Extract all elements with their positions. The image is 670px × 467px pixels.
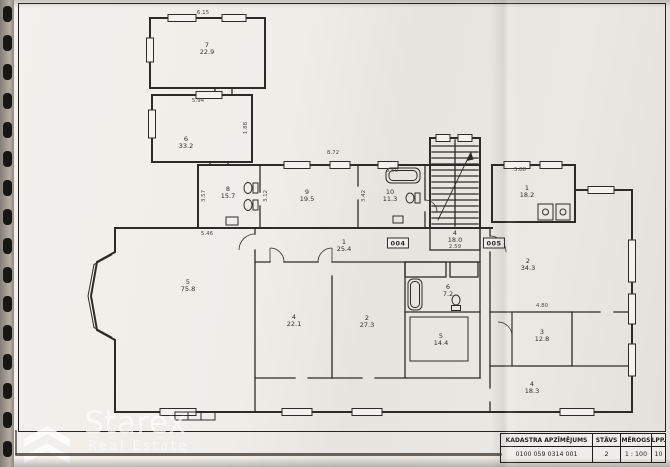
room-label: 312.8	[535, 329, 549, 343]
dimension-label: 6.15	[197, 10, 209, 16]
stairs-icon	[430, 138, 480, 228]
title-block-header-stavs: STĀVS	[593, 434, 621, 447]
binding-hole	[3, 93, 12, 109]
paper-bottom-edge	[15, 453, 502, 456]
binding-hole	[3, 122, 12, 138]
room-label: 722.9	[200, 42, 214, 56]
spiral-binding	[0, 0, 14, 467]
title-block-header-lpp: LPP.	[652, 434, 665, 447]
wc-cabin-icon	[538, 204, 553, 220]
binding-hole	[3, 64, 12, 80]
room-label: 575.8	[181, 279, 195, 293]
photographed-floorplan-page: 722.9 633.2 815.7 919.5 1011.3 418.0 125…	[0, 0, 670, 467]
binding-hole	[3, 412, 12, 428]
dimension-label: 8.72	[327, 150, 339, 156]
toilet-icon	[244, 183, 258, 194]
binding-hole	[3, 267, 12, 283]
dimension-label: 3.12	[263, 190, 269, 202]
binding-hole	[3, 383, 12, 399]
dimension-label: 1.88	[243, 122, 249, 134]
room-label: 422.1	[287, 314, 301, 328]
title-block-header-merogs: MĒROGS	[621, 434, 652, 447]
wc-cabin-icon	[556, 204, 570, 220]
floor-plan-drawing	[0, 0, 670, 467]
room-label: 125.4	[337, 239, 351, 253]
room-label: 514.4	[434, 333, 448, 347]
top-shadow	[0, 0, 670, 8]
toilet-icon	[244, 200, 258, 211]
room-label: 67.2	[443, 284, 453, 298]
sink-icon	[393, 216, 403, 223]
room-label: 418.3	[525, 381, 539, 395]
bathtub-icon	[408, 279, 422, 310]
binding-hole	[3, 209, 12, 225]
room-label: 227.3	[360, 315, 374, 329]
binding-hole	[3, 325, 12, 341]
bottom-shadow	[0, 458, 670, 467]
room-label: 118.2	[520, 185, 534, 199]
binding-hole	[3, 296, 12, 312]
binding-hole	[3, 151, 12, 167]
dimension-label: 3.42	[361, 190, 367, 202]
dimension-label: 5.46	[201, 231, 213, 237]
binding-hole	[3, 35, 12, 51]
dimension-label: 3.50	[386, 168, 398, 174]
dimension-label: 3.57	[201, 190, 207, 202]
room-label: 633.2	[179, 136, 193, 150]
fold-shadow	[490, 0, 520, 467]
dimension-label: 4.80	[536, 303, 548, 309]
room-label: 1011.3	[383, 189, 397, 203]
sink-icon	[226, 217, 238, 225]
binding-hole	[3, 6, 12, 22]
binding-hole	[3, 354, 12, 370]
door-arcs	[239, 200, 512, 336]
binding-hole	[3, 441, 12, 457]
room-label: 919.5	[300, 189, 314, 203]
unit-plate: 004	[387, 238, 409, 249]
binding-hole	[3, 180, 12, 196]
room-label: 234.3	[521, 258, 535, 272]
room-label: 418.0	[448, 230, 462, 244]
walls	[88, 18, 632, 412]
binding-hole	[3, 238, 12, 254]
room-label: 815.7	[221, 186, 235, 200]
paper-left-edge	[15, 430, 17, 455]
dimension-label: 2.59	[449, 244, 461, 250]
toilet-icon	[406, 193, 420, 203]
dimension-label: 5.94	[192, 98, 204, 104]
